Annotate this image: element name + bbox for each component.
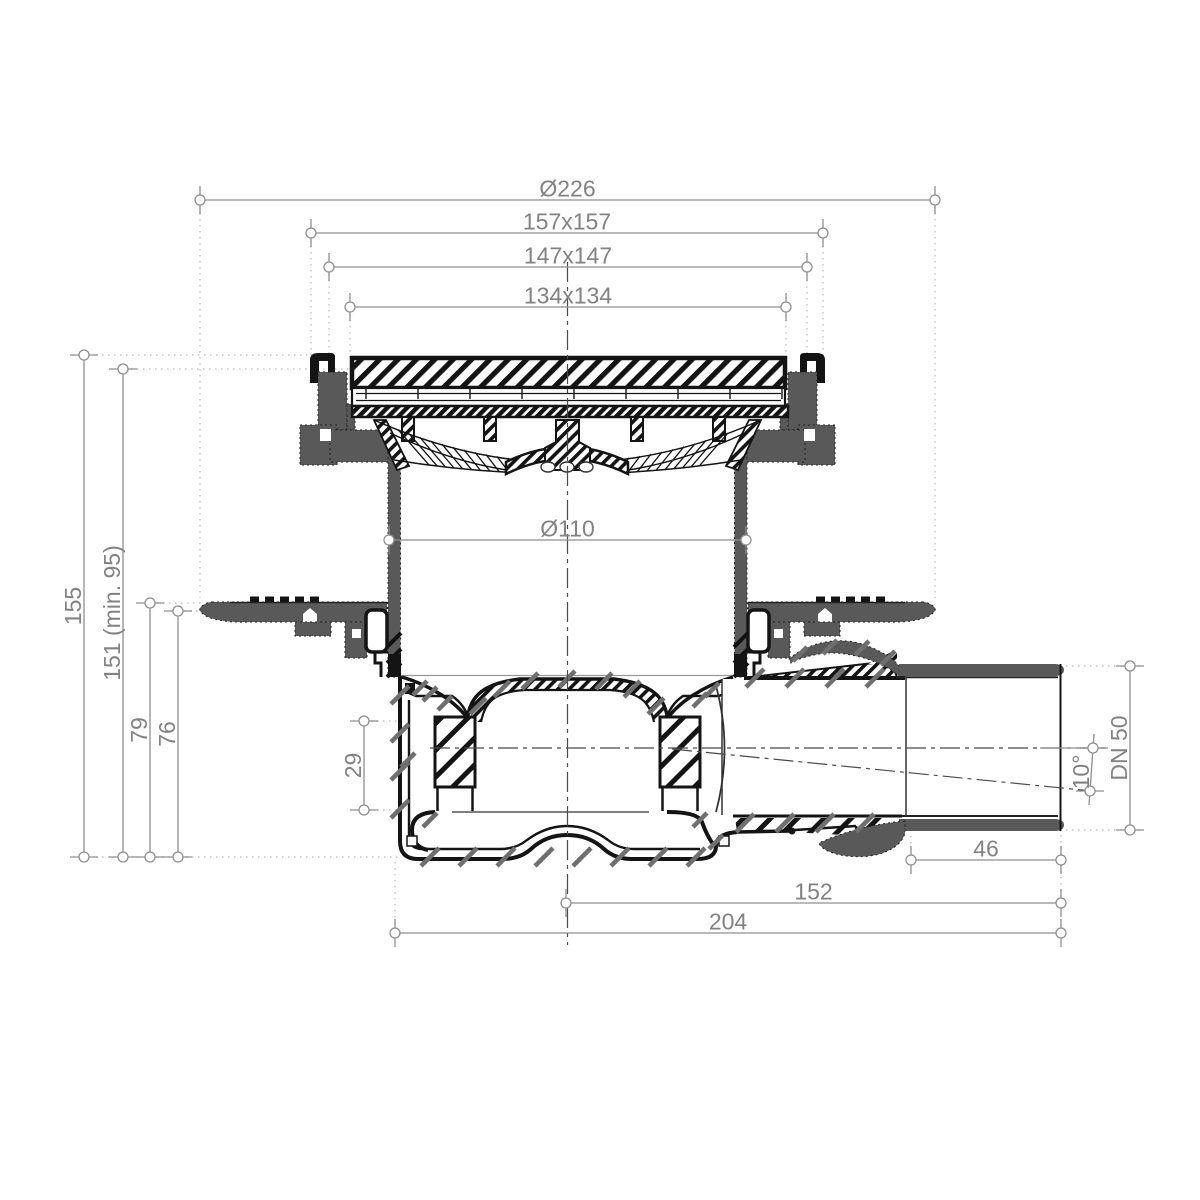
- svg-text:147x147: 147x147: [524, 243, 612, 269]
- svg-text:204: 204: [709, 909, 748, 935]
- svg-text:Ø226: Ø226: [539, 176, 595, 202]
- svg-text:134x134: 134x134: [524, 283, 612, 309]
- svg-text:157x157: 157x157: [523, 209, 611, 235]
- svg-text:155: 155: [60, 587, 86, 625]
- svg-text:151 (min. 95): 151 (min. 95): [99, 545, 125, 681]
- svg-text:29: 29: [340, 753, 366, 779]
- svg-text:Ø110: Ø110: [540, 516, 595, 542]
- svg-text:10°: 10°: [1068, 755, 1094, 790]
- svg-text:76: 76: [154, 721, 180, 747]
- svg-text:46: 46: [973, 836, 999, 862]
- svg-text:152: 152: [794, 879, 832, 905]
- svg-text:DN 50: DN 50: [1106, 715, 1132, 780]
- svg-text:79: 79: [126, 717, 152, 743]
